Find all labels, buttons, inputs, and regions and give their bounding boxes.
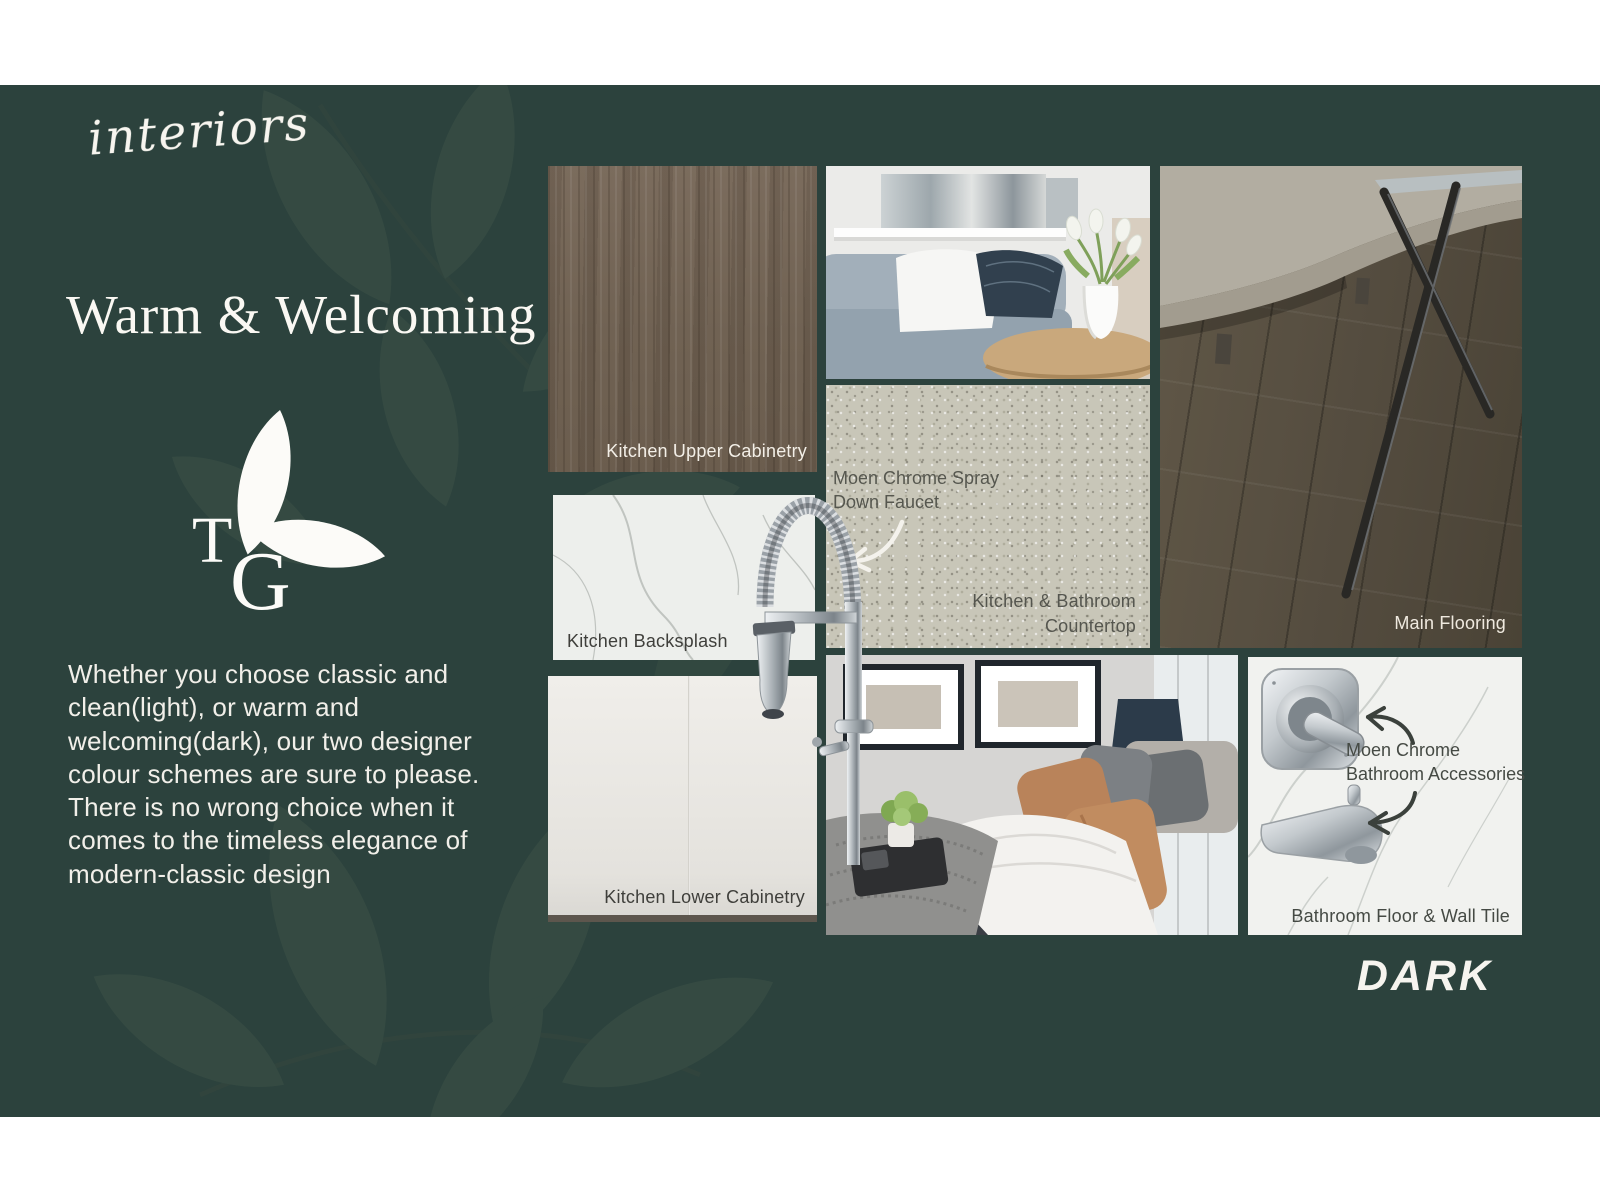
scheme-variant-label: DARK — [1340, 952, 1510, 1001]
logo-letter-t: T — [192, 508, 232, 574]
bathroom-fixtures-illustration — [1248, 657, 1522, 935]
spray-faucet-icon — [733, 452, 885, 877]
accessories-annotation: Moen Chrome Bathroom Accessories — [1346, 738, 1525, 787]
cabinet-base-shadow — [548, 915, 817, 922]
living-room-illustration — [826, 166, 1150, 379]
lower-cabinetry-label: Kitchen Lower Cabinetry — [604, 887, 805, 908]
countertop-label: Kitchen & Bathroom Countertop — [972, 589, 1136, 638]
intro-paragraph: Whether you choose classic and clean(lig… — [68, 658, 520, 891]
top-letterbox-bar — [0, 0, 1600, 85]
page-title: Warm & Welcoming — [66, 283, 536, 346]
backsplash-label: Kitchen Backsplash — [567, 631, 728, 652]
curved-arrow-down-icon — [1370, 793, 1415, 833]
bathroom-tile-label: Bathroom Floor & Wall Tile — [1291, 906, 1510, 927]
tile-kitchen-upper-cabinetry: Kitchen Upper Cabinetry — [548, 166, 817, 472]
cabinet-seam — [688, 676, 690, 922]
bottom-letterbox-bar — [0, 1117, 1600, 1200]
flooring-illustration — [1160, 166, 1522, 648]
tile-living-room-photo — [826, 166, 1150, 379]
moodboard-slide: interiors Warm & Welcoming T G Whether y… — [0, 0, 1600, 1200]
logo-letter-g: G — [230, 540, 291, 624]
flooring-label: Main Flooring — [1394, 613, 1506, 634]
tile-bathroom-tile: Bathroom Floor & Wall Tile — [1248, 657, 1522, 935]
tile-bedroom-photo — [826, 655, 1238, 935]
bedroom-illustration — [826, 655, 1238, 935]
tub-spout-icon — [1261, 785, 1382, 864]
tg-leaf-logo: T G — [170, 400, 410, 630]
tile-main-flooring: Main Flooring — [1160, 166, 1522, 648]
